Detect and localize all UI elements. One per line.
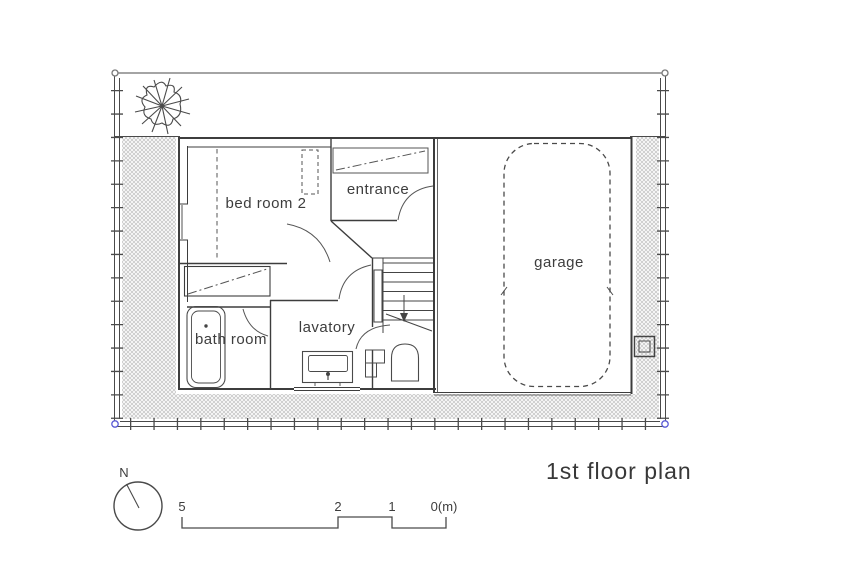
stairs (374, 258, 433, 333)
north-compass: N (114, 465, 162, 530)
lavatory-door-arc (339, 265, 371, 299)
scale-bar: 5 2 1 0(m) (178, 499, 457, 528)
corner-marker-bottom-left (112, 421, 118, 427)
room-label-entrance: entrance (347, 181, 409, 198)
floor-plan-page: bed room 2 entrance garage lavatory bath… (0, 0, 860, 573)
scale-label-2: 2 (334, 499, 341, 514)
window-lavatory-wall (294, 388, 360, 391)
plan-title: 1st floor plan (546, 458, 692, 484)
faucet (326, 372, 330, 376)
room-label-garage: garage (534, 254, 584, 271)
hatch-ground-area (122, 137, 659, 419)
room-label-lavatory: lavatory (299, 319, 356, 336)
north-needle (127, 484, 140, 508)
corner-marker-top-right (662, 70, 668, 76)
porch-canopy-dashdot (336, 151, 425, 170)
hand-basin (366, 350, 385, 363)
entrance-porch (333, 148, 428, 173)
corner-marker-top-left (112, 70, 118, 76)
toilet-door-arc (356, 325, 390, 349)
floor-plan-drawing: bed room 2 entrance garage lavatory bath… (0, 0, 860, 573)
room-label-bedroom2: bed room 2 (226, 195, 307, 212)
corner-marker-bottom-right (662, 421, 668, 427)
site-boundary (115, 73, 666, 427)
bedroom-door-arc (287, 224, 330, 262)
toilet (366, 344, 419, 381)
bedroom-dashed-closet (302, 150, 318, 194)
scale-label-5: 5 (178, 499, 185, 514)
room-label-bathroom: bath room (195, 331, 267, 348)
bathtub-drain (204, 324, 207, 327)
scale-label-1: 1 (388, 499, 395, 514)
site-corner-markers (112, 70, 668, 427)
storage-dashdot (188, 269, 267, 294)
north-label: N (119, 465, 128, 480)
tree-icon (135, 78, 190, 134)
scale-label-0m: 0(m) (431, 499, 458, 514)
car-mirrors (501, 287, 613, 295)
scale-bar-line (182, 517, 446, 528)
vanity-sink (303, 352, 353, 387)
